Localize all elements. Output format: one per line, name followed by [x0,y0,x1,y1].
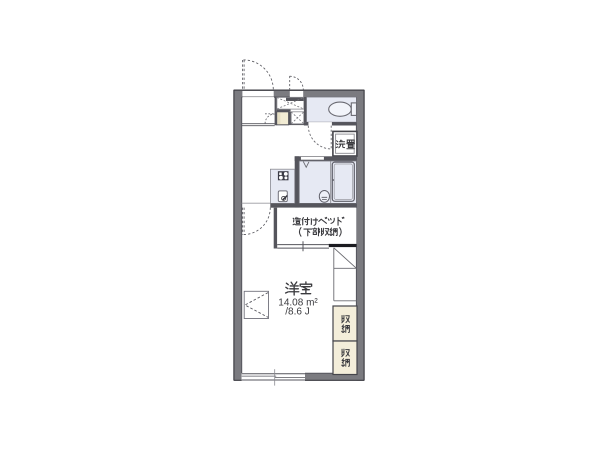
svg-text:/8.6 J: /8.6 J [285,307,309,318]
